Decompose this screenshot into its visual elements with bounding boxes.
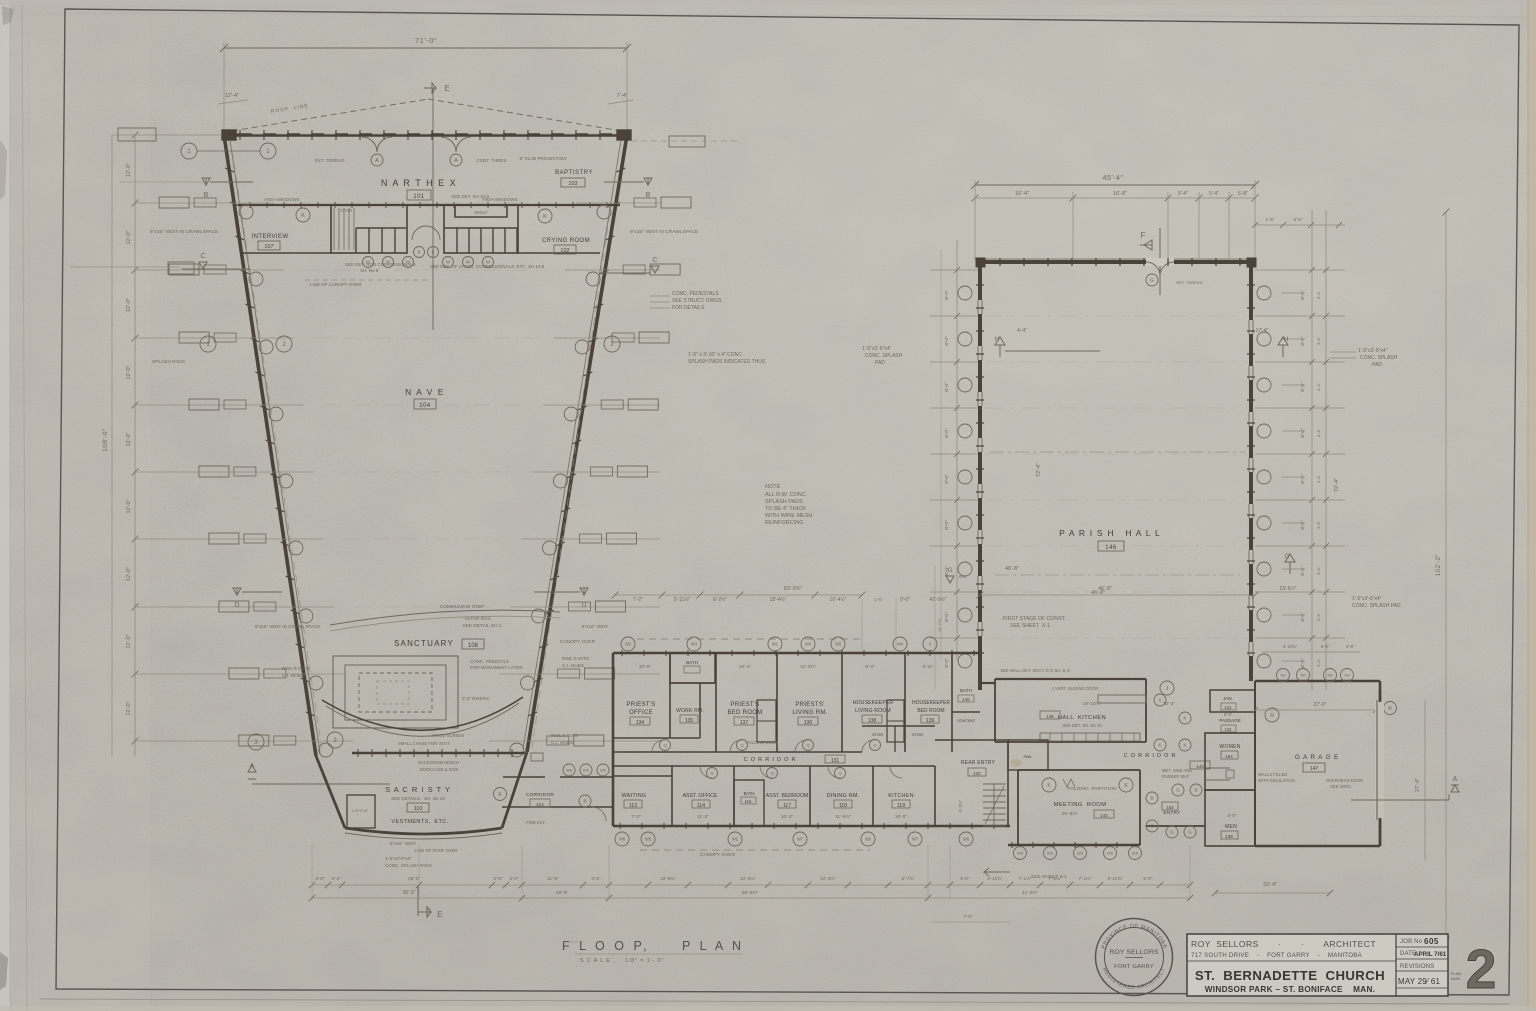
svg-text:PRIESTS': PRIESTS' — [795, 702, 824, 708]
svg-text:146: 146 — [1105, 545, 1117, 551]
svg-text:LINE OF ROOF OVER: LINE OF ROOF OVER — [415, 848, 458, 853]
svg-text:B: B — [417, 250, 420, 255]
svg-text:131: 131 — [831, 758, 840, 764]
svg-text:3'-4″: 3'-4″ — [1316, 382, 1321, 391]
svg-text:MEETING ROOM: MEETING ROOM — [1054, 802, 1107, 808]
svg-text:W6: W6 — [619, 837, 626, 842]
svg-text:9″ SLAB PROJECTION: 9″ SLAB PROJECTION — [519, 156, 566, 161]
svg-text:N: N — [711, 770, 714, 775]
svg-text:12'-3½″: 12'-3½″ — [820, 875, 836, 881]
svg-text:C: C — [200, 253, 205, 260]
svg-text:113: 113 — [536, 802, 544, 807]
svg-text:SH. No 8: SH. No 8 — [360, 268, 379, 273]
svg-text:107: 107 — [264, 244, 273, 250]
svg-text:WOOD SCREEN: WOOD SCREEN — [432, 733, 464, 738]
svg-text:W1: W1 — [772, 642, 779, 647]
svg-text:NOTE: NOTE — [765, 484, 781, 490]
svg-text:Q: Q — [873, 742, 876, 747]
svg-text:5'-8″: 5'-8″ — [1238, 191, 1248, 197]
svg-text:139: 139 — [926, 718, 935, 724]
svg-text:C.I. HUBS: C.I. HUBS — [282, 673, 304, 679]
svg-text:BATH: BATH — [960, 688, 972, 693]
svg-text:147: 147 — [1310, 766, 1319, 772]
svg-text:7'-1⅞″: 7'-1⅞″ — [1019, 876, 1032, 881]
svg-text:1'-6″x3'-6″x4″: 1'-6″x3'-6″x4″ — [1358, 348, 1388, 354]
svg-text:S A C R I S T Y: S A C R I S T Y — [385, 785, 451, 794]
svg-text:134: 134 — [636, 720, 645, 726]
svg-text:72'-4″: 72'-4″ — [1036, 463, 1042, 477]
svg-text:4'-6″: 4'-6″ — [591, 876, 601, 881]
svg-text:8'-0″: 8'-0″ — [944, 474, 950, 484]
svg-text:3'-4″: 3'-4″ — [1316, 290, 1321, 299]
svg-text:153: 153 — [1167, 805, 1175, 810]
svg-text:E: E — [437, 909, 443, 919]
svg-text:K: K — [1183, 743, 1186, 748]
svg-text:SEE DET. SH. No 10: SEE DET. SH. No 10 — [1062, 723, 1102, 728]
svg-text:115: 115 — [745, 799, 752, 804]
svg-text:136: 136 — [804, 720, 813, 726]
svg-text:OVERHEAD DOOR: OVERHEAD DOOR — [1326, 778, 1363, 783]
svg-text:RWL'S INTO: RWL'S INTO — [551, 733, 579, 739]
svg-text:27'-0″: 27'-0″ — [1314, 702, 1327, 708]
svg-text:PRIEST'S: PRIEST'S — [730, 702, 759, 708]
svg-text:46'-8″: 46'-8″ — [1005, 566, 1019, 572]
svg-text:Q: Q — [770, 770, 773, 775]
svg-text:C O R R I D O R: C O R R I D O R — [744, 757, 797, 763]
svg-text:FOR MONUMENT LATER: FOR MONUMENT LATER — [470, 665, 523, 670]
svg-text:MAY 29⁄ 61: MAY 29⁄ 61 — [1398, 977, 1441, 986]
svg-text:SEE DET. SH.10,9: SEE DET. SH.10,9 — [451, 194, 489, 199]
svg-text:10'-0″: 10'-0″ — [895, 814, 908, 820]
svg-text:ASST. BEDROOM: ASST. BEDROOM — [766, 793, 809, 799]
svg-text:18'-4½″: 18'-4½″ — [770, 596, 787, 603]
svg-text:1'-6″ x 3'-10″ x 4″ CONC.: 1'-6″ x 3'-10″ x 4″ CONC. — [688, 352, 743, 358]
svg-text:FOLDING DOOR: FOLDING DOOR — [746, 740, 778, 745]
svg-text:10'-4½″: 10'-4½″ — [830, 596, 847, 603]
svg-text:132: 132 — [973, 771, 981, 776]
svg-text:12'-0″: 12'-0″ — [126, 634, 132, 648]
svg-text:103: 103 — [568, 181, 577, 187]
svg-text:R: R — [1270, 713, 1274, 719]
svg-text:CANOPY OVER: CANOPY OVER — [560, 639, 596, 645]
svg-text:16'-4″: 16'-4″ — [1015, 191, 1029, 197]
svg-text:138: 138 — [868, 718, 877, 724]
svg-text:C O R R I D O R: C O R R I D O R — [1124, 753, 1177, 759]
svg-text:HALL KITCHEN: HALL KITCHEN — [1058, 715, 1106, 721]
svg-text:3'-4″: 3'-4″ — [1316, 474, 1321, 483]
svg-text:41'-0½″: 41'-0½″ — [1022, 889, 1039, 896]
svg-text:BOOKCASE & SINK: BOOKCASE & SINK — [420, 767, 459, 772]
svg-text:5'-4″: 5'-4″ — [1178, 191, 1188, 197]
svg-text:110: 110 — [414, 806, 423, 812]
svg-text:7'-3″: 7'-3″ — [631, 814, 641, 820]
svg-text:72'-4″: 72'-4″ — [1334, 478, 1340, 492]
svg-text:12'-4″: 12'-4″ — [225, 93, 239, 99]
svg-text:W5: W5 — [1077, 850, 1084, 855]
svg-text:B: B — [431, 250, 434, 255]
svg-text:FIRST STAGE OF CONST.: FIRST STAGE OF CONST. — [1003, 616, 1066, 622]
svg-text:142: 142 — [1225, 727, 1233, 732]
svg-text:12'-0″: 12'-0″ — [126, 163, 132, 177]
svg-text:8″x16″ VENT: 8″x16″ VENT — [390, 841, 416, 846]
svg-text:FOR DETAILS: FOR DETAILS — [672, 305, 705, 311]
svg-text:JAN.: JAN. — [1223, 696, 1233, 701]
svg-text:PAN.: PAN. — [1023, 754, 1032, 759]
svg-text:3'-4″: 3'-4″ — [1316, 520, 1321, 529]
svg-text:INTERVIEW: INTERVIEW — [252, 234, 289, 240]
svg-text:15'-9¾″: 15'-9¾″ — [660, 876, 676, 881]
svg-text:W5: W5 — [865, 837, 872, 842]
svg-text:3'-11⅝″: 3'-11⅝″ — [1107, 876, 1123, 881]
svg-text:16'-8″: 16'-8″ — [1113, 191, 1127, 197]
svg-text:LIVING ROOM: LIVING ROOM — [855, 708, 891, 714]
svg-text:WOMEN: WOMEN — [1219, 744, 1240, 750]
svg-text:BATH: BATH — [686, 660, 698, 665]
svg-text:B: B — [583, 799, 586, 804]
svg-text:W5: W5 — [1047, 850, 1054, 855]
svg-text:717 SOUTH DRIVE - FORT G: 717 SOUTH DRIVE - FORT GARRY - MANITOBA — [1191, 952, 1363, 959]
svg-text:12'-3½″: 12'-3½″ — [800, 663, 817, 670]
svg-text:A: A — [1453, 776, 1458, 783]
svg-text:WITH WIRE MESH: WITH WIRE MESH — [765, 513, 812, 519]
svg-text:9'-2″: 9'-2″ — [865, 664, 875, 670]
svg-text:MET. SINK AND: MET. SINK AND — [1162, 768, 1192, 773]
svg-text:RET. THRESH.: RET. THRESH. — [1176, 280, 1203, 285]
svg-text:5'-11½″: 5'-11½″ — [674, 596, 691, 603]
svg-text:SPLASH PADS: SPLASH PADS — [152, 359, 185, 365]
svg-text:FIRE EXT.: FIRE EXT. — [526, 820, 546, 825]
svg-text:W4: W4 — [897, 642, 904, 647]
svg-text:SHELF: SHELF — [474, 210, 488, 215]
svg-text:41'-0½″: 41'-0½″ — [930, 596, 947, 603]
svg-text:2 VERT. SLIDING DOOR: 2 VERT. SLIDING DOOR — [1052, 686, 1099, 691]
svg-text:Q: Q — [663, 742, 666, 747]
svg-text:3'-4″: 3'-4″ — [1316, 336, 1321, 345]
svg-text:11'-7⅞″: 11'-7⅞″ — [937, 618, 942, 632]
svg-text:5'-0″: 5'-0″ — [1143, 876, 1153, 881]
svg-text:605: 605 — [1424, 937, 1439, 946]
svg-text:RWL'S INTO: RWL'S INTO — [562, 656, 590, 662]
svg-text:138: 138 — [1225, 834, 1233, 839]
svg-text:8'-11″: 8'-11″ — [922, 664, 934, 669]
svg-text:PAD: PAD — [1372, 362, 1382, 368]
svg-text:3'-0″: 3'-0″ — [315, 876, 325, 881]
svg-text:20'-6½″: 20'-6½″ — [1062, 810, 1079, 817]
svg-text:SEE SHEET X-1: SEE SHEET X-1 — [1010, 623, 1050, 629]
svg-text:HOUSEKEEPER: HOUSEKEEPER — [853, 700, 894, 706]
svg-text:3'-4″: 3'-4″ — [1316, 612, 1321, 621]
svg-text:PAD: PAD — [875, 360, 885, 366]
svg-text:SPLASH PADS: SPLASH PADS — [765, 499, 803, 505]
svg-text:3'-4″: 3'-4″ — [1316, 566, 1321, 575]
svg-text:1'-6″x3'-6″x4″: 1'-6″x3'-6″x4″ — [1352, 596, 1382, 602]
svg-text:STAIR: STAIR — [340, 208, 352, 213]
svg-text:71'-0″: 71'-0″ — [415, 36, 437, 45]
svg-text:W5: W5 — [1132, 850, 1139, 855]
svg-text:8'-0″: 8'-0″ — [1300, 612, 1306, 622]
svg-text:RWL'S INTO: RWL'S INTO — [282, 666, 310, 672]
svg-text:SEE WALL DET. SECT. G-G SH. 8,: SEE WALL DET. SECT. G-G SH. 8, 9 — [1000, 668, 1070, 673]
svg-text:DINING RM.: DINING RM. — [827, 793, 860, 799]
svg-text:5'-0″: 5'-0″ — [960, 876, 970, 881]
svg-text:CONC. SPLASH PAD: CONC. SPLASH PAD — [1352, 603, 1401, 609]
svg-text:102'-2″: 102'-2″ — [1436, 554, 1442, 576]
svg-text:K: K — [1183, 716, 1186, 721]
svg-text:8'-0″: 8'-0″ — [1300, 520, 1306, 530]
svg-text:B: B — [204, 192, 209, 199]
svg-text:12'-0″: 12'-0″ — [126, 701, 132, 715]
svg-text:G: G — [1176, 788, 1180, 793]
svg-text:SPLASH PADS INDICATED THUS: SPLASH PADS INDICATED THUS — [688, 359, 766, 365]
svg-text:PRIEST'S: PRIEST'S — [626, 702, 655, 708]
svg-text:45'-4″: 45'-4″ — [1103, 175, 1124, 182]
svg-text:CONC. PEDESTALS: CONC. PEDESTALS — [672, 291, 719, 297]
svg-text:K: K — [1158, 698, 1161, 703]
svg-text:ST. BERNADETTE CHURCH: ST. BERNADETTE CHURCH — [1195, 968, 1385, 983]
svg-text:W6: W6 — [583, 768, 589, 772]
svg-text:8'-0″: 8'-0″ — [944, 520, 950, 530]
svg-text:12'-0″: 12'-0″ — [126, 298, 132, 312]
svg-text:C.I. HUBS: C.I. HUBS — [551, 740, 573, 746]
svg-text:L'S+2'-6″: L'S+2'-6″ — [352, 808, 369, 813]
svg-text:WALLS FILLED: WALLS FILLED — [1258, 772, 1287, 777]
svg-text:1'-6″x3'-6″x4″: 1'-6″x3'-6″x4″ — [385, 856, 412, 861]
svg-text:3'-0″: 3'-0″ — [509, 876, 519, 881]
svg-text:K: K — [301, 213, 305, 219]
svg-text:W4: W4 — [805, 642, 812, 647]
svg-text:TO BE 4″ THICK: TO BE 4″ THICK — [765, 506, 806, 512]
svg-text:SEE DET. OF CHOIR, CONFESSIONA: SEE DET. OF CHOIR, CONFESSIONALS, ETC. S… — [430, 264, 545, 269]
svg-text:W2: W2 — [732, 837, 739, 842]
svg-text:N A R T H E X: N A R T H E X — [381, 178, 457, 188]
svg-text:27'-4″: 27'-4″ — [1415, 778, 1421, 792]
svg-text:J: J — [1166, 686, 1169, 692]
svg-text:W6: W6 — [600, 768, 606, 772]
svg-text:63'-9¾″: 63'-9¾″ — [784, 586, 803, 592]
svg-text:Q: Q — [806, 742, 809, 747]
svg-text:26'-0″: 26'-0″ — [408, 876, 420, 881]
svg-text:F: F — [1141, 231, 1146, 240]
svg-text:5'-4″: 5'-4″ — [1321, 644, 1330, 649]
svg-text:108'-0″: 108'-0″ — [102, 428, 109, 452]
svg-text:5'-6″: 5'-6″ — [1294, 217, 1303, 222]
svg-text:W6: W6 — [963, 837, 970, 842]
svg-text:1'-6″: 1'-6″ — [1266, 217, 1275, 222]
svg-text:B: B — [646, 192, 651, 199]
svg-text:E: E — [444, 84, 449, 93]
svg-text:W5: W5 — [1017, 850, 1024, 855]
svg-text:N9: N9 — [1280, 672, 1286, 677]
svg-text:154: 154 — [1225, 754, 1233, 759]
svg-text:K: K — [1158, 743, 1161, 748]
svg-text:8'-0″: 8'-0″ — [1300, 566, 1306, 576]
svg-text:N A V E: N A V E — [405, 387, 445, 397]
svg-text:135: 135 — [685, 718, 694, 724]
svg-text:108: 108 — [468, 643, 479, 649]
svg-text:3'-4″: 3'-4″ — [1316, 428, 1321, 437]
svg-text:2: 2 — [1466, 938, 1497, 1000]
svg-text:BED ROOM: BED ROOM — [917, 708, 944, 714]
svg-text:FORT GARRY: FORT GARRY — [1114, 964, 1154, 970]
svg-text:143: 143 — [1196, 764, 1204, 769]
svg-text:G A R A G E: G A R A G E — [1295, 754, 1339, 761]
svg-text:101: 101 — [413, 194, 425, 200]
svg-text:WITH INSULATION: WITH INSULATION — [1258, 778, 1295, 783]
svg-text:5'-2½″: 5'-2½″ — [958, 800, 963, 812]
svg-text:5'-0″: 5'-0″ — [1224, 712, 1233, 717]
svg-text:SACRARIUM BENCH: SACRARIUM BENCH — [418, 760, 459, 765]
svg-text:W5: W5 — [1107, 850, 1114, 855]
svg-text:CONC. PEDESTLS: CONC. PEDESTLS — [470, 659, 509, 664]
svg-text:K: K — [543, 214, 547, 220]
svg-text:PASSAGE: PASSAGE — [1219, 718, 1240, 723]
svg-text:8'-0″: 8'-0″ — [1300, 474, 1306, 484]
svg-text:BAPTISTRY: BAPTISTRY — [555, 170, 593, 176]
svg-text:8'-0″: 8'-0″ — [1300, 658, 1306, 668]
svg-text:W5: W5 — [645, 837, 652, 842]
svg-text:SEE SHEET X-1: SEE SHEET X-1 — [1031, 874, 1067, 880]
svg-text:VESTMENTS, ETC.: VESTMENTS, ETC. — [391, 819, 448, 825]
svg-text:CONTENT: CONTENT — [957, 719, 976, 723]
svg-text:ASST. OFFICE: ASST. OFFICE — [683, 793, 718, 799]
svg-text:W2: W2 — [625, 642, 632, 647]
svg-text:G: G — [1284, 553, 1289, 560]
svg-text:BATH: BATH — [744, 791, 755, 796]
svg-text:N9: N9 — [1327, 672, 1333, 677]
svg-text:W7: W7 — [912, 837, 919, 842]
svg-text:8″x16″ VENT: 8″x16″ VENT — [582, 624, 608, 629]
svg-text:137: 137 — [740, 720, 749, 726]
svg-text:CRYING ROOM: CRYING ROOM — [542, 238, 590, 244]
svg-text:P A R I S H H A L L: P A R I S H H A L L — [1059, 528, 1161, 538]
svg-text:10'-4″: 10'-4″ — [739, 664, 752, 670]
svg-text:3'-4″: 3'-4″ — [1316, 658, 1321, 667]
svg-text:7'-1⅛″: 7'-1⅛″ — [1079, 876, 1092, 881]
svg-text:119: 119 — [897, 803, 905, 809]
svg-text:A: A — [454, 158, 458, 164]
svg-text:B: B — [1150, 796, 1153, 801]
svg-text:A: A — [375, 158, 379, 164]
svg-text:118: 118 — [839, 803, 847, 809]
svg-text:C: C — [652, 257, 657, 264]
svg-text:Q: Q — [838, 770, 841, 775]
svg-text:W5: W5 — [835, 642, 842, 647]
svg-text:10'-8″: 10'-8″ — [639, 664, 652, 670]
svg-text:3'-6″: 3'-6″ — [493, 876, 503, 881]
svg-text:JOB No: JOB No — [1400, 939, 1423, 945]
svg-text:8'-0″: 8'-0″ — [944, 382, 950, 392]
svg-text:12'-0″: 12'-0″ — [126, 432, 132, 446]
svg-text:10'-3″: 10'-3″ — [781, 814, 794, 820]
svg-text:F L O O P, P L A N: F L O O P, P L A N — [562, 939, 744, 953]
svg-text:8″x16″ VENT IN CRAWL SPACE: 8″x16″ VENT IN CRAWL SPACE — [255, 624, 320, 629]
svg-text:140: 140 — [962, 697, 970, 702]
svg-text:7'-2″: 7'-2″ — [633, 597, 643, 603]
svg-text:HOUSEKEEPER: HOUSEKEEPER — [912, 700, 950, 706]
svg-text:3'-4″: 3'-4″ — [331, 876, 341, 881]
svg-text:H: H — [995, 336, 1000, 343]
svg-text:11'-8″: 11'-8″ — [547, 876, 559, 881]
svg-text:D: D — [234, 602, 239, 609]
svg-text:117: 117 — [783, 803, 791, 809]
svg-text:18'-5″: 18'-5″ — [556, 890, 569, 896]
svg-text:7'-4″: 7'-4″ — [617, 93, 628, 99]
svg-text:ALTAR RAIL: ALTAR RAIL — [465, 616, 492, 622]
svg-text:17'-4″: 17'-4″ — [1256, 328, 1269, 334]
svg-text:5'-0″: 5'-0″ — [1228, 813, 1237, 818]
svg-text:REAR ENTRY: REAR ENTRY — [961, 760, 996, 766]
svg-text:RWL: RWL — [959, 574, 969, 579]
svg-text:6'-7⅞″: 6'-7⅞″ — [902, 876, 915, 881]
svg-text:SMALL CHASE FOR VENT: SMALL CHASE FOR VENT — [398, 741, 450, 746]
svg-text:102: 102 — [560, 248, 569, 254]
svg-text:36'-3″: 36'-3″ — [403, 890, 416, 896]
svg-text:D: D — [581, 602, 586, 609]
svg-text:4'-10⅝″: 4'-10⅝″ — [1283, 644, 1298, 649]
svg-text:KITCHEN: KITCHEN — [888, 793, 914, 799]
svg-text:58'-9¾″: 58'-9¾″ — [742, 890, 759, 896]
svg-text:8'-0″: 8'-0″ — [944, 336, 950, 346]
svg-text:8'-0″: 8'-0″ — [944, 566, 950, 576]
svg-text:WINDSOR PARK – ST. BONIFACE: WINDSOR PARK – ST. BONIFACE MAN. — [1205, 985, 1375, 994]
svg-text:ROY SELLORS: ROY SELLORS — [1110, 949, 1159, 956]
svg-text:REINFORCING: REINFORCING — [765, 520, 804, 526]
svg-text:8'-0″: 8'-0″ — [1300, 336, 1306, 346]
svg-text:8'-0″: 8'-0″ — [944, 290, 950, 300]
svg-text:18'-10½″: 18'-10½″ — [1083, 700, 1102, 707]
svg-text:1'-0: 1'-0 — [874, 597, 882, 602]
svg-text:SEE DETAIL SH.1: SEE DETAIL SH.1 — [462, 623, 502, 629]
svg-text:33'-4″: 33'-4″ — [1263, 882, 1277, 888]
svg-text:104: 104 — [419, 403, 431, 409]
svg-text:CANOPY OVER: CANOPY OVER — [700, 852, 736, 858]
svg-text:STOR.: STOR. — [872, 732, 884, 737]
svg-text:3'-11⅝″: 3'-11⅝″ — [987, 876, 1003, 881]
svg-text:46'-8″: 46'-8″ — [1098, 586, 1112, 592]
svg-text:N9: N9 — [1344, 672, 1350, 677]
svg-text:COMMUNION STEP: COMMUNION STEP — [440, 604, 485, 610]
svg-text:STOR.: STOR. — [912, 732, 924, 737]
svg-text:ENTRY: ENTRY — [1163, 810, 1181, 816]
svg-text:5'-4″: 5'-4″ — [1209, 191, 1219, 197]
svg-text:LINE OF CANOPY OVER: LINE OF CANOPY OVER — [310, 282, 362, 287]
svg-text:MEN: MEN — [1225, 824, 1237, 830]
svg-text:SEE DETAILS - SH. No 10: SEE DETAILS - SH. No 10 — [391, 796, 445, 801]
svg-text:8″x16″ VENT IN CRAWLSPACE: 8″x16″ VENT IN CRAWLSPACE — [150, 229, 218, 235]
svg-text:12'-0″: 12'-0″ — [126, 230, 132, 244]
svg-text:11'-2″: 11'-2″ — [697, 814, 709, 820]
svg-text:8'-0″: 8'-0″ — [1300, 382, 1306, 392]
svg-text:G: G — [1170, 830, 1174, 835]
svg-text:W3: W3 — [691, 642, 698, 647]
svg-text:CONC. SPLASH PADS: CONC. SPLASH PADS — [385, 863, 432, 868]
svg-text:WORK RM.: WORK RM. — [676, 708, 704, 714]
svg-text:8'-0″: 8'-0″ — [1300, 290, 1306, 300]
svg-text:8'-0″: 8'-0″ — [944, 658, 950, 668]
svg-text:7'-0″: 7'-0″ — [964, 914, 973, 919]
svg-text:B: B — [1194, 788, 1197, 793]
svg-text:REVISIONS: REVISIONS — [1400, 964, 1434, 970]
svg-text:CONC. SPLASH: CONC. SPLASH — [1360, 355, 1398, 361]
svg-text:PLAN: PLAN — [1451, 972, 1461, 976]
svg-text:8'-0″: 8'-0″ — [944, 428, 950, 438]
svg-text:CONC. SPLASH: CONC. SPLASH — [865, 353, 903, 359]
svg-text:23'-6½″: 23'-6½″ — [1280, 585, 1297, 592]
svg-text:WAITING: WAITING — [622, 793, 647, 799]
svg-text:114: 114 — [697, 803, 705, 809]
svg-text:113: 113 — [629, 803, 637, 809]
svg-text:141: 141 — [1225, 705, 1233, 710]
